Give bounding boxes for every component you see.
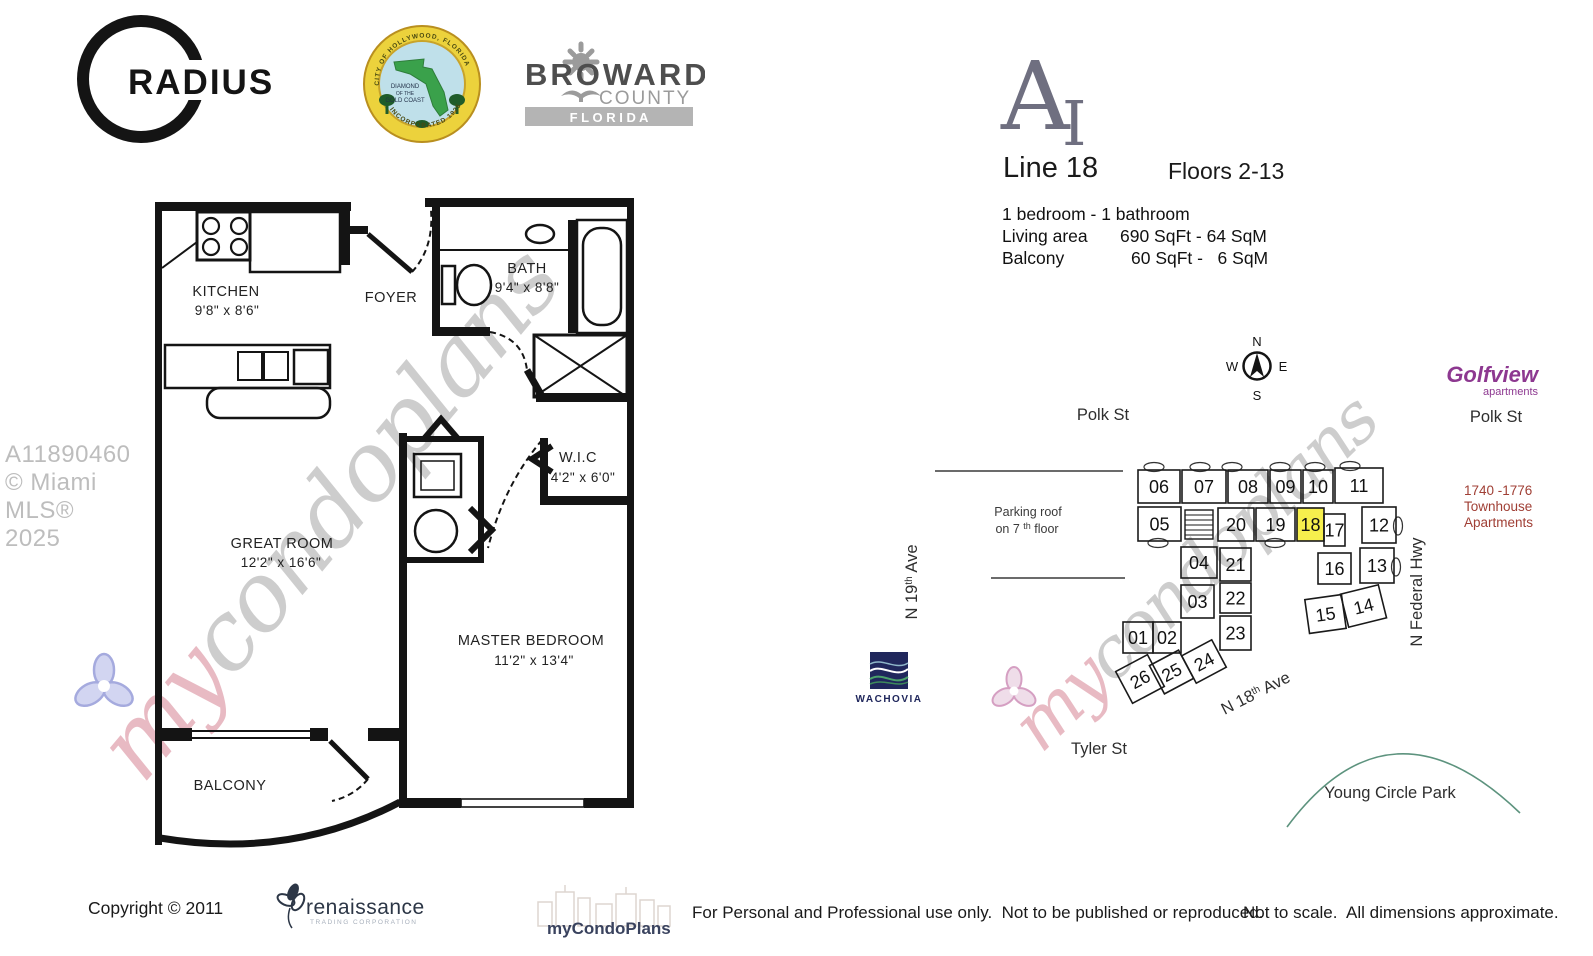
bath-sink [526, 225, 554, 243]
toilet [442, 266, 455, 304]
polk-st-left: Polk St [1077, 406, 1130, 424]
stairwell [1185, 510, 1213, 539]
svg-text:Golfview: Golfview [1446, 362, 1540, 387]
site-unit-label-17: 17 [1324, 521, 1344, 541]
svg-text:Apartments: Apartments [1464, 515, 1533, 530]
site-unit-label-07: 07 [1194, 477, 1214, 497]
master-bedroom-label: MASTER BEDROOM [458, 633, 604, 649]
svg-text:apartments: apartments [1483, 386, 1539, 398]
svg-text:E: E [1279, 359, 1288, 374]
site-unit-label-02: 02 [1157, 628, 1177, 648]
mls-watermark: A11890460 © Miami MLS® 2025 [5, 441, 131, 553]
site-unit-label-19: 19 [1265, 515, 1285, 535]
kitchen-dims: 9'8" x 8'6" [195, 303, 260, 318]
svg-text:WACHOVIA: WACHOVIA [856, 694, 923, 705]
unit-model-letter: A [1001, 50, 1070, 145]
living-area-value: 690 SqFt - 64 SqM [1120, 226, 1267, 247]
n-federal-hwy: N Federal Hwy [1408, 537, 1426, 647]
bath-label: BATH [507, 261, 547, 277]
trillium-watermark-icon [68, 648, 140, 728]
balcony-area-value: 60 SqFt - 6 SqM [1131, 248, 1268, 269]
broward-county-logo: BROWARD COUNTY F L O R I D A [515, 40, 705, 130]
master-bedroom-dims: 11'2" x 13'4" [494, 653, 574, 668]
svg-text:N: N [1252, 334, 1261, 349]
site-unit-label-03: 03 [1187, 592, 1207, 612]
counter [250, 212, 340, 272]
floors-label: Floors 2-13 [1168, 158, 1284, 185]
site-unit-label-14: 14 [1351, 594, 1375, 618]
svg-text:on 7 th floor: on 7 th floor [995, 521, 1058, 536]
line-label: Line 18 [1003, 152, 1098, 185]
svg-text:OF THE: OF THE [396, 91, 415, 97]
svg-text:DIAMOND: DIAMOND [391, 84, 420, 90]
wic-label: W.I.C [559, 450, 597, 466]
site-unit-label-13: 13 [1367, 556, 1387, 576]
floorplan-drawing: KITCHEN 9'8" x 8'6" FOYER BATH 9'4" x 8'… [140, 190, 660, 880]
great-room-dims: 12'2" x 16'6" [241, 555, 322, 570]
unit-model-numeral: I [1062, 93, 1087, 155]
balcony-label: BALCONY [194, 778, 267, 794]
wachovia-logo: WACHOVIA [856, 652, 923, 705]
bath-dims: 9'4" x 8'8" [495, 280, 560, 295]
site-unit-label-08: 08 [1238, 477, 1258, 497]
site-unit-label-15: 15 [1314, 603, 1337, 626]
polk-st-right: Polk St [1470, 408, 1523, 426]
parking-note: Parking roof on 7 th floor [994, 505, 1062, 536]
radius-logo: RADIUS [60, 10, 320, 150]
radius-logo-text: RADIUS [128, 63, 274, 102]
site-plan: N S W E Polk St Polk St Tyler St N 19th … [850, 330, 1593, 850]
site-unit-label-12: 12 [1369, 516, 1389, 536]
condo-plan-sheet: A11890460 © Miami MLS® 2025 mycondoplans… [0, 0, 1593, 956]
renaissance-sub-text: TRADING CORPORATION [310, 919, 417, 926]
site-unit-label-24: 24 [1191, 648, 1218, 675]
site-unit-label-06: 06 [1149, 477, 1169, 497]
site-unit-label-20: 20 [1226, 515, 1246, 535]
site-unit-label-01: 01 [1128, 628, 1148, 648]
bath-fixtures [440, 220, 627, 397]
scale-disclaimer: Not to scale. All dimensions approximate… [1243, 903, 1559, 923]
site-unit-label-10: 10 [1308, 477, 1328, 497]
site-unit-label-21: 21 [1225, 555, 1245, 575]
townhouse-label: 1740 -1776 Townhouse Apartments [1464, 483, 1533, 530]
svg-text:GOLD COAST: GOLD COAST [385, 98, 425, 104]
site-unit-label-05: 05 [1149, 515, 1169, 535]
wic-dims: 4'2" x 6'0" [551, 470, 616, 485]
site-unit-label-26: 26 [1127, 666, 1154, 693]
n-18th-ave: N 18th Ave [1218, 668, 1293, 718]
living-area-label: Living area [1002, 226, 1088, 247]
balcony-area-label: Balcony [1002, 248, 1064, 269]
svg-text:Townhouse: Townhouse [1464, 499, 1532, 514]
laundry-closet [414, 454, 461, 552]
building-units: 0607080910110520191817120421161303222315… [1116, 468, 1396, 703]
bed-bath-text: 1 bedroom - 1 bathroom [1002, 204, 1190, 225]
svg-text:Parking roof: Parking roof [994, 505, 1062, 519]
svg-text:S: S [1253, 388, 1262, 403]
young-circle-park: Young Circle Park [1324, 784, 1456, 802]
dryer [415, 510, 457, 552]
mycondoplans-logo: myCondoPlans [518, 882, 683, 940]
site-unit-label-18: 18 [1300, 515, 1320, 535]
broward-text: BROWARD [525, 57, 705, 92]
great-room-label: GREAT ROOM [231, 536, 334, 552]
site-unit-label-11: 11 [1350, 476, 1369, 496]
mycondoplans-text: myCondoPlans [547, 919, 671, 938]
kitchen-label: KITCHEN [192, 284, 259, 300]
island-counter [207, 388, 330, 418]
site-unit-label-16: 16 [1324, 559, 1344, 579]
hollywood-seal: CITY OF HOLLYWOOD, FLORIDA INCORPORATED … [360, 20, 490, 150]
site-unit-label-23: 23 [1225, 624, 1245, 644]
county-text: COUNTY [599, 88, 691, 109]
usage-disclaimer: For Personal and Professional use only. … [692, 903, 1263, 923]
tyler-st: Tyler St [1071, 740, 1127, 758]
renaissance-logo: renaissance TRADING CORPORATION [276, 878, 426, 930]
n-19th-ave: N 19th Ave [903, 544, 921, 619]
renaissance-text: renaissance [306, 896, 425, 919]
foyer-label: FOYER [365, 290, 417, 306]
florida-text: F L O R I D A [570, 110, 649, 125]
compass-icon: N S W E [1226, 334, 1288, 403]
site-unit-label-04: 04 [1189, 553, 1209, 573]
renaissance-trillium-icon [276, 882, 307, 928]
golfview-label: Golfview apartments [1446, 362, 1540, 398]
sink [238, 352, 262, 380]
svg-text:W: W [1226, 359, 1239, 374]
site-unit-label-22: 22 [1225, 589, 1245, 609]
copyright-text: Copyright © 2011 [88, 898, 223, 919]
svg-text:1740 -1776: 1740 -1776 [1464, 483, 1532, 498]
site-unit-label-09: 09 [1275, 477, 1295, 497]
